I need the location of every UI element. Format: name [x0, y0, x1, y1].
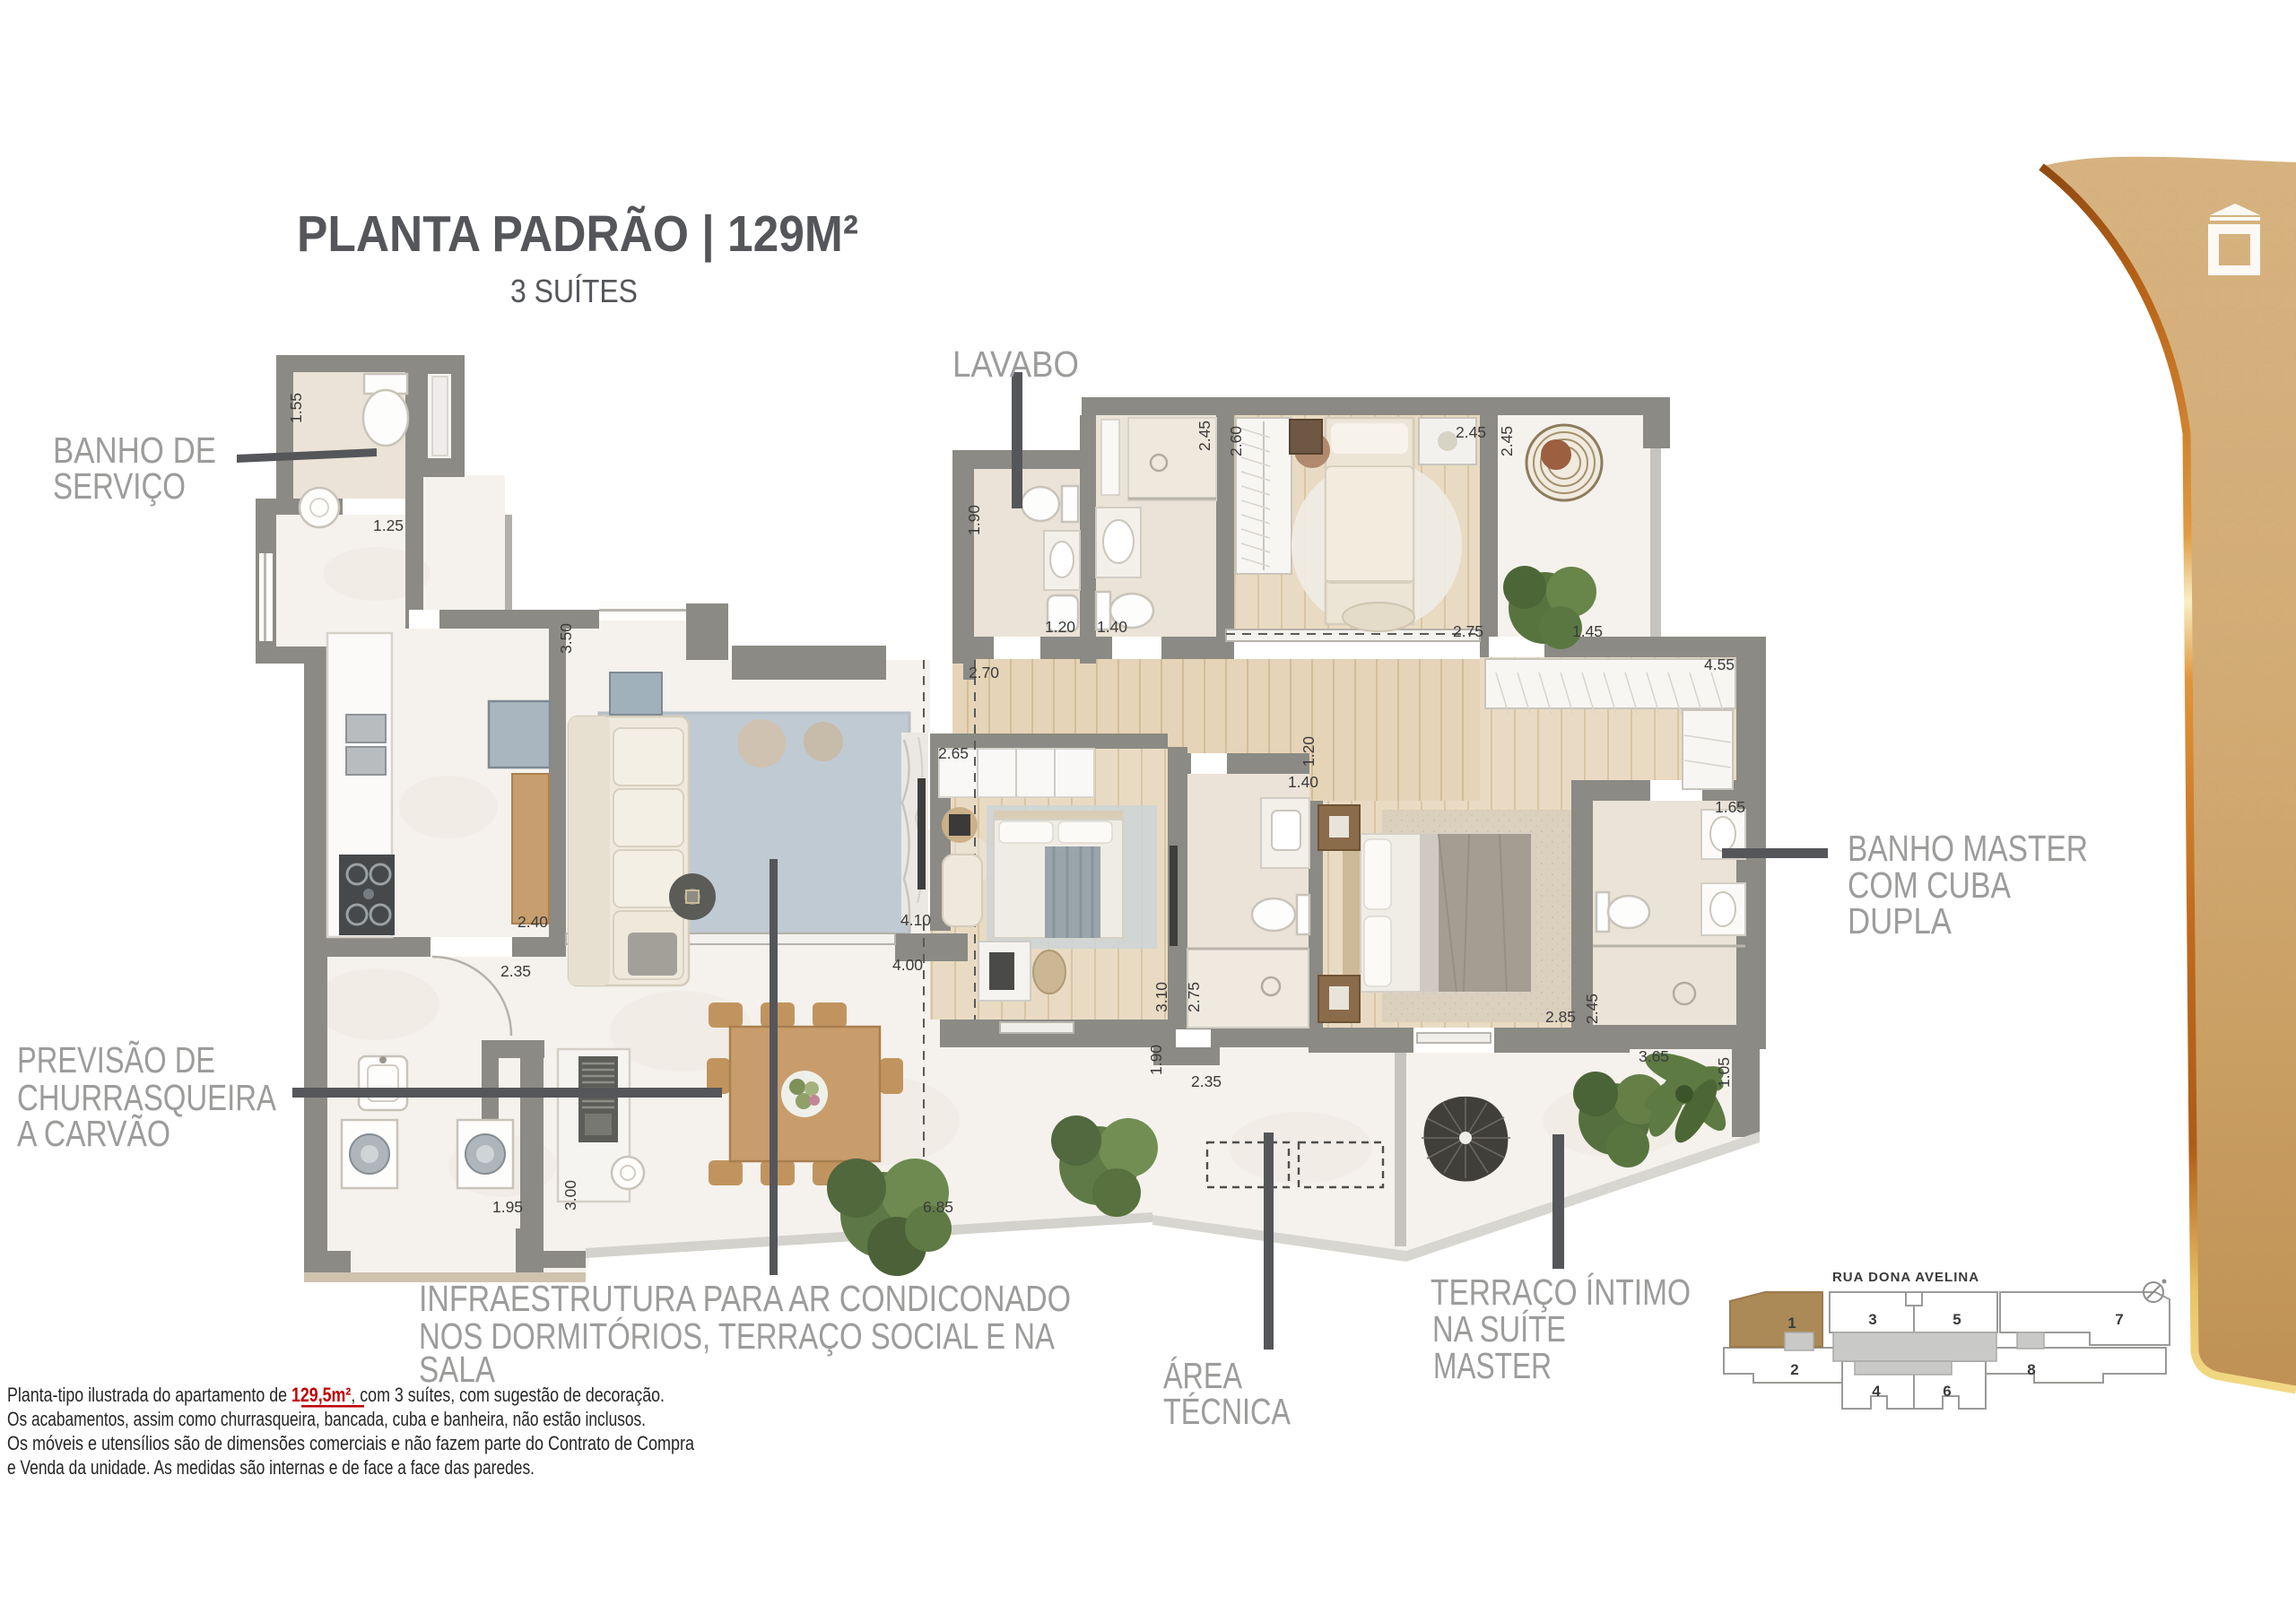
svg-text:Planta-tipo ilustrada do apart: Planta-tipo ilustrada do apartamento de … — [7, 1384, 665, 1406]
svg-text:1.90: 1.90 — [1147, 1045, 1165, 1075]
svg-text:INFRAESTRUTURA PARA AR CONDICO: INFRAESTRUTURA PARA AR CONDICONADO — [419, 1278, 1071, 1319]
svg-text:DUPLA: DUPLA — [1848, 900, 1952, 942]
svg-text:8: 8 — [2027, 1361, 2035, 1378]
svg-text:RUA DONA AVELINA: RUA DONA AVELINA — [1832, 1270, 1979, 1285]
svg-text:MASTER: MASTER — [1433, 1345, 1552, 1386]
svg-text:3.10: 3.10 — [1152, 982, 1170, 1012]
svg-text:2: 2 — [1790, 1361, 1798, 1378]
svg-text:Os acabamentos, assim como chu: Os acabamentos, assim como churrasqueira… — [7, 1408, 646, 1430]
svg-text:SERVIÇO: SERVIÇO — [53, 465, 186, 507]
svg-text:TÉCNICA: TÉCNICA — [1163, 1391, 1291, 1432]
svg-text:4.00: 4.00 — [892, 956, 923, 974]
svg-text:1.20: 1.20 — [1045, 618, 1075, 636]
svg-text:3 SUÍTES: 3 SUÍTES — [510, 273, 638, 309]
svg-text:PLANTA PADRÃO | 129M²: PLANTA PADRÃO | 129M² — [297, 205, 858, 263]
svg-text:4: 4 — [1872, 1383, 1881, 1400]
svg-text:2.45: 2.45 — [1196, 421, 1213, 451]
svg-text:6.85: 6.85 — [923, 1198, 953, 1216]
svg-text:3: 3 — [1868, 1311, 1876, 1328]
svg-text:PREVISÃO DE: PREVISÃO DE — [17, 1039, 215, 1081]
svg-text:2.60: 2.60 — [1227, 426, 1245, 456]
svg-text:4.55: 4.55 — [1704, 655, 1735, 673]
svg-text:TERRAÇO ÍNTIMO: TERRAÇO ÍNTIMO — [1431, 1271, 1691, 1313]
svg-text:4.10: 4.10 — [900, 911, 931, 929]
svg-text:2.35: 2.35 — [1191, 1072, 1222, 1090]
svg-text:NA SUÍTE: NA SUÍTE — [1432, 1308, 1566, 1350]
svg-text:NOS DORMITÓRIOS, TERRAÇO SOCIA: NOS DORMITÓRIOS, TERRAÇO SOCIAL E NA — [419, 1315, 1056, 1357]
svg-text:1.65: 1.65 — [1715, 798, 1745, 816]
svg-text:5: 5 — [1952, 1311, 1961, 1328]
svg-text:1.40: 1.40 — [1288, 773, 1318, 791]
svg-text:2.65: 2.65 — [938, 744, 969, 762]
svg-text:LAVABO: LAVABO — [952, 343, 1079, 385]
svg-text:Os móveis e utensílios são de: Os móveis e utensílios são de dimensões … — [7, 1432, 695, 1454]
svg-text:1.20: 1.20 — [1300, 736, 1318, 767]
svg-text:2.75: 2.75 — [1185, 982, 1203, 1012]
svg-text:2.40: 2.40 — [517, 913, 548, 931]
svg-text:2.70: 2.70 — [969, 664, 999, 681]
svg-text:1.05: 1.05 — [1715, 1057, 1733, 1088]
svg-text:BANHO MASTER: BANHO MASTER — [1848, 828, 2088, 869]
svg-text:1: 1 — [1787, 1315, 1796, 1332]
svg-text:1.40: 1.40 — [1097, 618, 1127, 636]
svg-text:2.85: 2.85 — [1545, 1008, 1576, 1026]
svg-text:2.45: 2.45 — [1583, 994, 1601, 1024]
svg-text:1.55: 1.55 — [287, 393, 305, 423]
svg-text:2.35: 2.35 — [500, 962, 531, 980]
svg-text:2.75: 2.75 — [1453, 622, 1483, 640]
svg-text:6: 6 — [1943, 1383, 1951, 1400]
svg-text:A CARVÃO: A CARVÃO — [17, 1113, 170, 1154]
svg-text:3.00: 3.00 — [561, 1180, 579, 1211]
svg-text:3.50: 3.50 — [557, 623, 575, 654]
svg-text:7: 7 — [2115, 1311, 2123, 1328]
svg-text:2.45: 2.45 — [1456, 423, 1486, 441]
svg-text:1.25: 1.25 — [373, 516, 404, 534]
svg-text:e Venda da unidade. As medidas: e Venda da unidade. As medidas são inter… — [7, 1456, 535, 1479]
svg-text:1.95: 1.95 — [492, 1198, 523, 1216]
svg-text:3.65: 3.65 — [1639, 1047, 1669, 1065]
svg-text:1.45: 1.45 — [1572, 622, 1603, 640]
svg-text:1.90: 1.90 — [965, 505, 983, 535]
svg-text:2.45: 2.45 — [1498, 426, 1516, 456]
